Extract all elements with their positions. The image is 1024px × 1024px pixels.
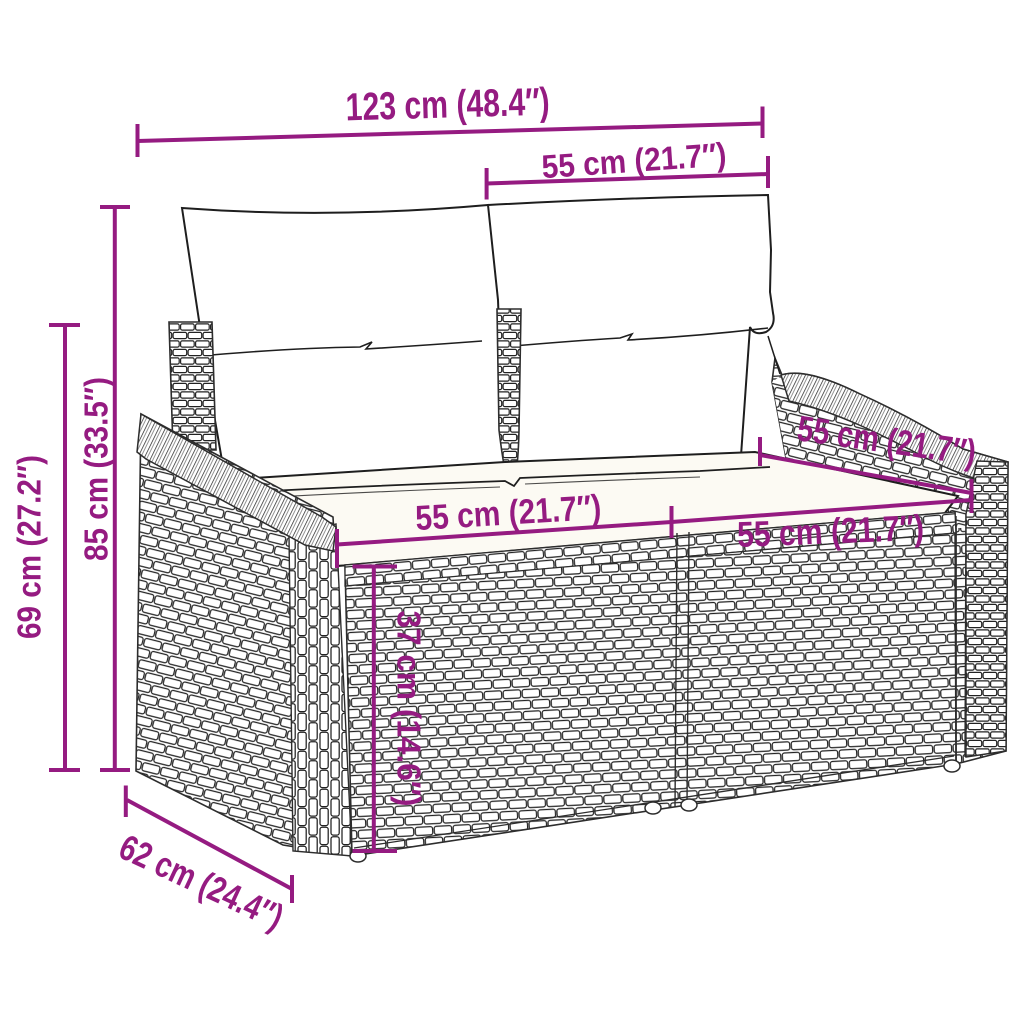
svg-text:85 cm (33.5″): 85 cm (33.5″) <box>78 377 115 561</box>
svg-text:69 cm (27.2″): 69 cm (27.2″) <box>11 455 48 639</box>
svg-text:55 cm (21.7″): 55 cm (21.7″) <box>736 507 924 555</box>
svg-text:37 cm (14.6″): 37 cm (14.6″) <box>390 611 427 807</box>
svg-text:123 cm (48.4″): 123 cm (48.4″) <box>345 81 550 130</box>
